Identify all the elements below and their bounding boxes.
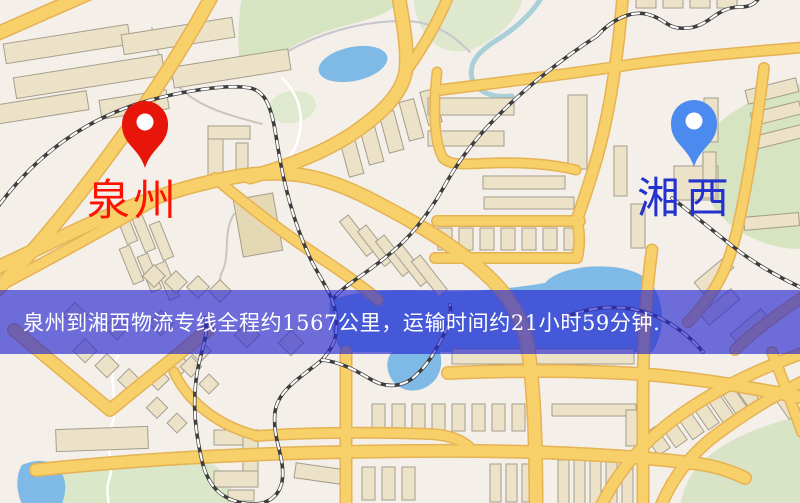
origin-pin-hole (137, 114, 154, 131)
map-canvas[interactable]: 泉州 湘西 泉州到湘西物流专线全程约1567公里，运输时间约21小时59分钟. (0, 0, 800, 503)
origin-label: 泉州 (87, 180, 179, 223)
map-image (0, 0, 800, 503)
destination-pin-hole (686, 113, 703, 130)
destination-label: 湘西 (637, 178, 735, 221)
route-info-text: 泉州到湘西物流专线全程约1567公里，运输时间约21小时59分钟. (23, 307, 660, 337)
route-info-banner: 泉州到湘西物流专线全程约1567公里，运输时间约21小时59分钟. (0, 290, 800, 354)
